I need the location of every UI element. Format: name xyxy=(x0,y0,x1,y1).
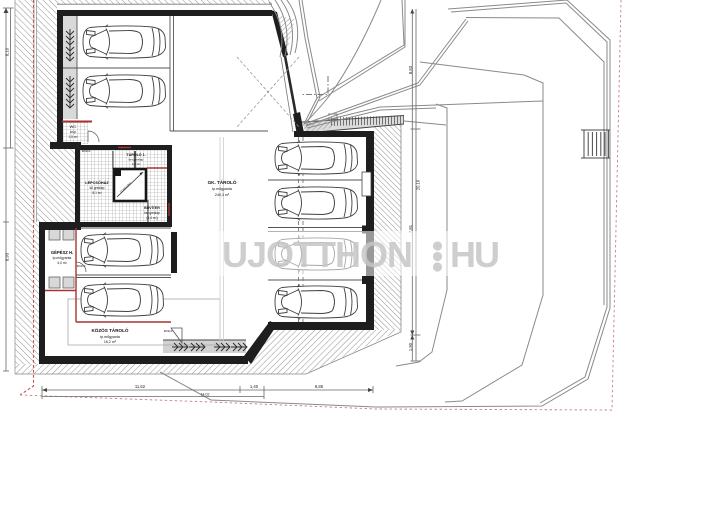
svg-text:8,93: 8,93 xyxy=(5,252,10,261)
svg-text:UJOTTHON: UJOTTHON xyxy=(222,234,412,275)
svg-text:11,62: 11,62 xyxy=(135,384,146,389)
svg-text:WC: WC xyxy=(70,124,77,129)
svg-text:KÖZÖS TÁROLÓ: KÖZÖS TÁROLÓ xyxy=(91,326,128,333)
svg-text:tp.műgyanta: tp.műgyanta xyxy=(212,187,232,191)
svg-text:(5,4 m²): (5,4 m²) xyxy=(146,216,157,220)
svg-text:8,83: 8,83 xyxy=(408,65,413,74)
svg-text:kő greslap: kő greslap xyxy=(90,186,105,190)
svg-text:LÉPCSŐHÁZ: LÉPCSŐHÁZ xyxy=(85,180,109,185)
svg-text:8,86: 8,86 xyxy=(315,384,324,389)
svg-text:90/210: 90/210 xyxy=(82,149,91,153)
svg-text:8,10: 8,10 xyxy=(5,47,10,56)
svg-text:20,16: 20,16 xyxy=(416,179,421,190)
svg-text:tp.műgyanta: tp.műgyanta xyxy=(100,335,120,339)
svg-text:TÁROLÓ 1.: TÁROLÓ 1. xyxy=(126,152,145,157)
svg-text:1,90: 1,90 xyxy=(408,342,413,351)
svg-text:ker.greslap: ker.greslap xyxy=(144,211,160,215)
svg-text:14,02: 14,02 xyxy=(201,393,210,397)
svg-text:tp.műgyanta: tp.műgyanta xyxy=(53,256,72,260)
svg-text:GK. TÁROLÓ: GK. TÁROLÓ xyxy=(208,178,237,185)
svg-text:HU: HU xyxy=(450,234,498,275)
svg-text:8,1 m²: 8,1 m² xyxy=(92,191,101,195)
svg-text:90/210: 90/210 xyxy=(77,264,86,268)
svg-text:4,0 m²: 4,0 m² xyxy=(57,261,67,265)
svg-text:GÉPÉSZ H.: GÉPÉSZ H. xyxy=(51,250,73,255)
svg-text:90/210: 90/210 xyxy=(164,329,173,333)
svg-text:a:üp: a:üp xyxy=(70,130,76,134)
svg-text:3,5 m²: 3,5 m² xyxy=(132,162,141,166)
svg-text:16,2 m²: 16,2 m² xyxy=(104,340,117,344)
svg-text:1,5 m²: 1,5 m² xyxy=(68,135,77,139)
svg-text:ker.greslap: ker.greslap xyxy=(129,158,144,162)
svg-text:240,3 m²: 240,3 m² xyxy=(215,193,230,197)
svg-text:1,40: 1,40 xyxy=(250,384,259,389)
svg-text:BŰVÍTER: BŰVÍTER xyxy=(144,205,160,210)
